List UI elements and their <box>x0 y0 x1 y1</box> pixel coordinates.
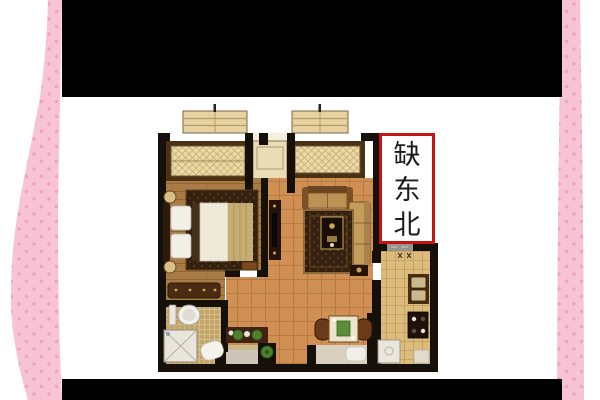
plant-icon <box>261 346 273 358</box>
vanity-icon <box>226 327 268 343</box>
screenshot-canvas: 缺 东 北 <box>0 0 600 400</box>
annotation-char: 北 <box>394 212 421 239</box>
annotation-char: 东 <box>394 177 421 204</box>
annotation-char: 缺 <box>394 142 421 169</box>
missing-corner-annotation: 缺 东 北 <box>379 133 435 244</box>
bedroom-door-leaf <box>242 262 257 270</box>
dining-set-icon <box>315 316 372 342</box>
tv-cabinet-icon <box>269 200 281 260</box>
living-bay-window <box>290 141 365 178</box>
floor-plan <box>0 0 600 400</box>
toilet-icon <box>169 305 200 325</box>
coffee-table-icon <box>321 217 343 249</box>
shower-icon <box>164 330 197 362</box>
stove-icon <box>408 312 428 338</box>
balcony-right <box>292 104 348 133</box>
nightstand-icon <box>164 191 176 203</box>
bench-icon <box>168 283 220 298</box>
side-table-icon <box>350 265 368 276</box>
kitchen-window <box>387 243 413 251</box>
dining-window-recess <box>315 345 368 364</box>
sink-icon <box>408 274 429 304</box>
nightstand-icon <box>164 261 176 273</box>
bedroom-bay-window <box>166 141 250 181</box>
entry-recess <box>226 345 258 364</box>
balcony-left <box>183 104 247 133</box>
